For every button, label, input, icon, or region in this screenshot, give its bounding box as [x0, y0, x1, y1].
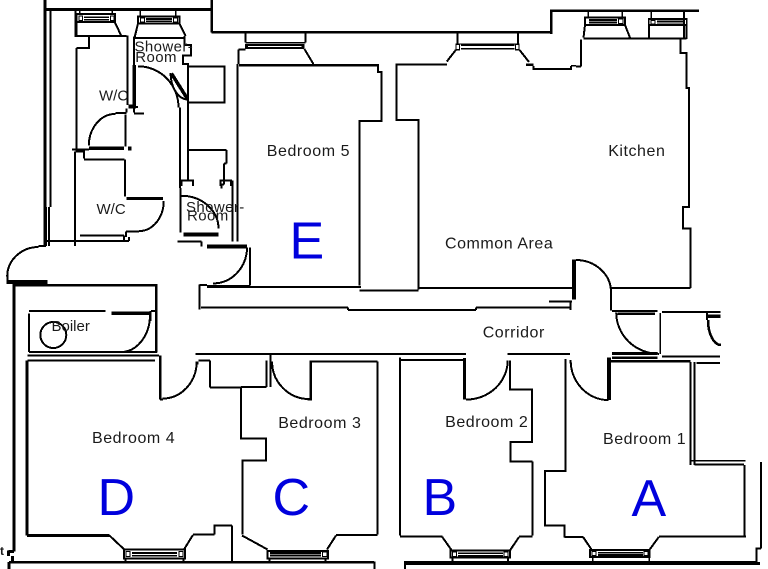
svg-text:B: B: [423, 469, 458, 527]
svg-text:Room: Room: [135, 49, 177, 66]
svg-text:Room: Room: [187, 208, 229, 225]
svg-text:E: E: [290, 213, 325, 271]
svg-text:D: D: [98, 469, 136, 527]
svg-text:A: A: [632, 470, 667, 528]
svg-text:Boiler: Boiler: [52, 318, 90, 335]
svg-text:Bedroom 5: Bedroom 5: [267, 143, 350, 160]
svg-text:Bedroom 3: Bedroom 3: [278, 415, 361, 432]
svg-text:C: C: [273, 469, 311, 527]
svg-text:t: t: [0, 544, 4, 558]
svg-text:Bedroom 1: Bedroom 1: [603, 431, 686, 448]
svg-text:Kitchen: Kitchen: [608, 143, 665, 160]
svg-text:Bedroom 2: Bedroom 2: [445, 414, 528, 431]
svg-text:Common Area: Common Area: [445, 236, 553, 253]
svg-text:Corridor: Corridor: [483, 324, 545, 341]
svg-text:W/C: W/C: [99, 88, 128, 105]
svg-text:Bedroom 4: Bedroom 4: [92, 430, 175, 447]
svg-text:W/C: W/C: [97, 201, 126, 218]
